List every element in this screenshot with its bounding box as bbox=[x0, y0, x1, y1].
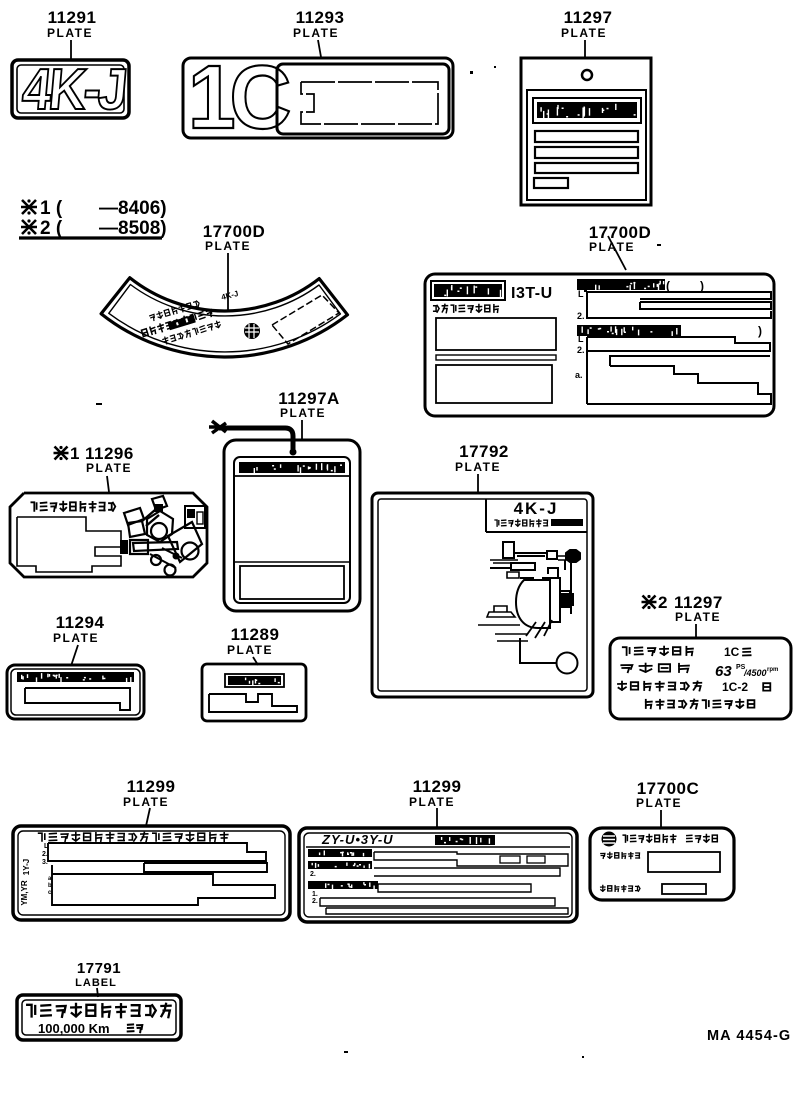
svg-text:11294: 11294 bbox=[56, 613, 105, 632]
svg-text:11299: 11299 bbox=[127, 777, 176, 796]
svg-text:(: ( bbox=[666, 279, 670, 293]
svg-text:2.: 2. bbox=[310, 871, 316, 878]
svg-text:100,000 Km: 100,000 Km bbox=[38, 1021, 110, 1036]
svg-text:2: 2 bbox=[658, 593, 667, 612]
svg-text:1C: 1C bbox=[188, 47, 289, 147]
svg-text:—8406): —8406) bbox=[99, 198, 167, 219]
svg-text:I3T-U: I3T-U bbox=[511, 285, 553, 302]
svg-text:3.: 3. bbox=[42, 859, 48, 866]
svg-text:a.: a. bbox=[575, 370, 583, 380]
svg-text:63: 63 bbox=[715, 663, 732, 680]
svg-text:11297: 11297 bbox=[564, 8, 613, 27]
svg-text:2 (: 2 ( bbox=[40, 218, 63, 239]
svg-text:PLATE: PLATE bbox=[53, 631, 99, 645]
svg-text:PLATE: PLATE bbox=[455, 460, 501, 474]
svg-text:PLATE: PLATE bbox=[86, 461, 132, 475]
svg-text:17792: 17792 bbox=[459, 442, 509, 461]
svg-text:2.: 2. bbox=[577, 311, 585, 321]
svg-text:L: L bbox=[578, 289, 584, 299]
svg-text:PLATE: PLATE bbox=[280, 406, 326, 420]
svg-text:2.: 2. bbox=[42, 851, 48, 858]
svg-text:PLATE: PLATE bbox=[205, 239, 251, 253]
svg-text:2.: 2. bbox=[312, 898, 318, 905]
svg-text:11299: 11299 bbox=[413, 777, 462, 796]
svg-text:YM,YR: YM,YR bbox=[20, 880, 29, 906]
svg-text:1.: 1. bbox=[312, 891, 318, 898]
svg-text:PLATE: PLATE bbox=[123, 795, 169, 809]
svg-text:rpm: rpm bbox=[767, 667, 778, 673]
svg-text:): ) bbox=[700, 279, 704, 293]
svg-text:PLATE: PLATE bbox=[409, 795, 455, 809]
svg-text:1C: 1C bbox=[724, 645, 740, 659]
svg-text:1Y-J: 1Y-J bbox=[22, 859, 31, 875]
svg-text:4K-J: 4K-J bbox=[514, 499, 559, 518]
svg-text:11291: 11291 bbox=[48, 8, 97, 27]
svg-text:PLATE: PLATE bbox=[675, 610, 721, 624]
svg-text:PLATE: PLATE bbox=[47, 26, 93, 40]
svg-text:PLATE: PLATE bbox=[293, 26, 339, 40]
svg-text:/4500: /4500 bbox=[743, 668, 767, 678]
svg-text:1C-2: 1C-2 bbox=[722, 680, 748, 694]
svg-text:LABEL: LABEL bbox=[75, 977, 117, 989]
svg-text:4K-J: 4K-J bbox=[20, 57, 128, 122]
svg-text:PLATE: PLATE bbox=[561, 26, 607, 40]
svg-text:PLATE: PLATE bbox=[636, 796, 682, 810]
svg-text:—8508): —8508) bbox=[99, 218, 167, 239]
svg-text:MA 4454-G: MA 4454-G bbox=[707, 1028, 791, 1044]
svg-text:11289: 11289 bbox=[231, 625, 280, 644]
svg-text:): ) bbox=[758, 324, 762, 338]
svg-text:1: 1 bbox=[70, 444, 79, 463]
svg-text:L: L bbox=[578, 334, 584, 344]
svg-text:1 (: 1 ( bbox=[40, 198, 63, 219]
svg-text:ZY-U•3Y-U: ZY-U•3Y-U bbox=[321, 832, 394, 847]
svg-text:PLATE: PLATE bbox=[227, 643, 273, 657]
svg-text:11293: 11293 bbox=[296, 8, 345, 27]
svg-text:2.: 2. bbox=[577, 345, 585, 355]
svg-text:17791: 17791 bbox=[77, 960, 121, 977]
